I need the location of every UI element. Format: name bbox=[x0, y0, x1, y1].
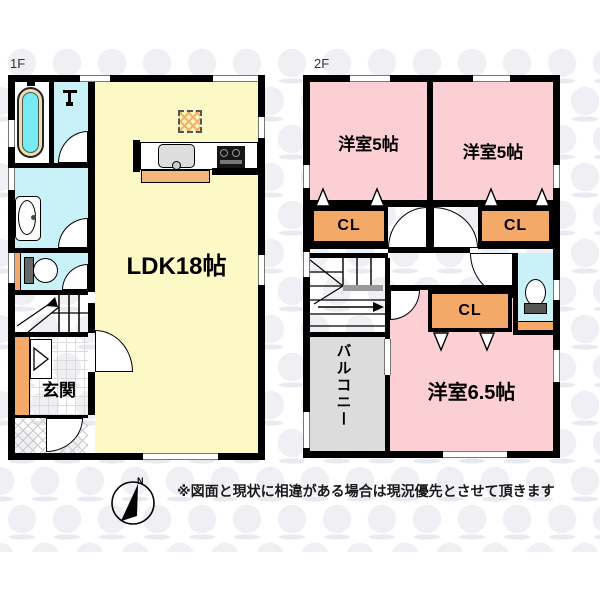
closet-door bbox=[30, 339, 52, 379]
folding-door-icon bbox=[31, 340, 51, 378]
washbasin-icon bbox=[15, 196, 41, 241]
compass-icon: N bbox=[110, 479, 157, 526]
shoe-closet bbox=[15, 337, 30, 415]
toilet-room-2f bbox=[518, 253, 553, 321]
closet-right: CL bbox=[478, 207, 553, 245]
floorplan-2f: 洋室5帖 洋室5帖 洋室6.5帖 CL CL CL bbox=[303, 75, 560, 458]
compass-north-label: N bbox=[137, 476, 144, 486]
closet-main-label: CL bbox=[458, 302, 481, 320]
window-marker bbox=[473, 75, 510, 82]
wall-segment bbox=[310, 253, 388, 258]
folding-door-icon bbox=[432, 332, 450, 352]
window-marker bbox=[258, 255, 265, 285]
folding-door-icon bbox=[368, 187, 386, 207]
wall-segment bbox=[88, 82, 95, 292]
sink-drain-icon bbox=[172, 161, 181, 170]
window-marker bbox=[143, 453, 218, 460]
closet-main: CL bbox=[428, 290, 512, 332]
toilet-bowl-icon bbox=[525, 279, 546, 306]
bath-faucet-icon bbox=[27, 82, 35, 86]
wall-segment bbox=[133, 140, 140, 172]
wall-segment bbox=[15, 332, 88, 337]
hatched-marker bbox=[178, 110, 202, 133]
folding-door-icon bbox=[478, 332, 496, 352]
toilet-shelf bbox=[518, 321, 553, 330]
door-arc bbox=[388, 207, 427, 248]
wall-segment bbox=[88, 303, 95, 333]
floor-label-2f: 2F bbox=[314, 56, 329, 71]
bedroom-5-left-label: 洋室5帖 bbox=[310, 136, 427, 155]
bedroom-65-label: 洋室6.5帖 bbox=[390, 382, 553, 404]
stairs-2f bbox=[310, 258, 385, 332]
door-arc bbox=[433, 207, 478, 248]
folding-door-icon bbox=[533, 187, 551, 207]
window-marker bbox=[553, 165, 560, 188]
toilet-tank-icon bbox=[524, 303, 547, 314]
toilet-bowl-icon bbox=[33, 258, 58, 283]
laundry-faucet-icon bbox=[62, 88, 78, 108]
balcony: バルコニー bbox=[310, 337, 385, 451]
sliding-door-marker bbox=[384, 339, 391, 375]
bathroom bbox=[15, 82, 49, 163]
wall-segment bbox=[15, 290, 88, 295]
floor-label-1f: 1F bbox=[10, 56, 25, 71]
wall-segment bbox=[513, 253, 518, 330]
window-marker bbox=[258, 117, 265, 138]
wall-segment bbox=[388, 248, 470, 253]
closet-left-label: CL bbox=[337, 217, 360, 235]
wall-segment bbox=[15, 163, 88, 168]
wall-segment bbox=[513, 330, 553, 335]
wall-segment bbox=[15, 248, 88, 253]
toilet-shelf bbox=[15, 253, 21, 290]
wall-segment bbox=[212, 168, 258, 175]
bedroom-5-right bbox=[433, 82, 553, 200]
window-marker bbox=[8, 253, 15, 283]
window-marker bbox=[443, 451, 507, 458]
folding-door-icon bbox=[482, 187, 500, 207]
window-marker bbox=[8, 120, 15, 147]
floorplan-1f: 玄関 LDK18帖 bbox=[8, 75, 265, 460]
window-marker bbox=[350, 75, 390, 82]
wall-segment bbox=[49, 82, 54, 163]
kitchen-lower-counter bbox=[141, 170, 210, 183]
balcony-label: バルコニー bbox=[334, 343, 351, 428]
closet-left: CL bbox=[310, 207, 388, 245]
compass-needle-icon bbox=[110, 479, 157, 526]
ldk-label: LDK18帖 bbox=[95, 254, 258, 280]
genkan-label: 玄関 bbox=[30, 382, 88, 401]
bathtub-icon bbox=[17, 87, 44, 158]
window-marker bbox=[303, 165, 310, 188]
closet-right-label: CL bbox=[504, 217, 527, 235]
window-marker bbox=[303, 252, 310, 277]
stairs-icon bbox=[310, 258, 385, 332]
wall-segment bbox=[310, 332, 390, 337]
window-marker bbox=[80, 75, 110, 82]
window-marker bbox=[553, 280, 560, 300]
disclaimer-note: ※図面と現状に相違がある場合は現況優先とさせて頂きます bbox=[177, 481, 555, 501]
wall-segment bbox=[427, 82, 433, 253]
window-marker bbox=[303, 412, 310, 448]
window-marker bbox=[213, 75, 258, 82]
wall-segment bbox=[88, 372, 95, 415]
stairs-icon bbox=[15, 295, 88, 332]
window-marker bbox=[8, 168, 15, 190]
window-marker bbox=[553, 350, 560, 382]
bedroom-5-right-label: 洋室5帖 bbox=[433, 144, 553, 163]
folding-door-icon bbox=[314, 187, 332, 207]
stove-icon bbox=[217, 146, 245, 168]
stairs-1f bbox=[15, 295, 88, 332]
